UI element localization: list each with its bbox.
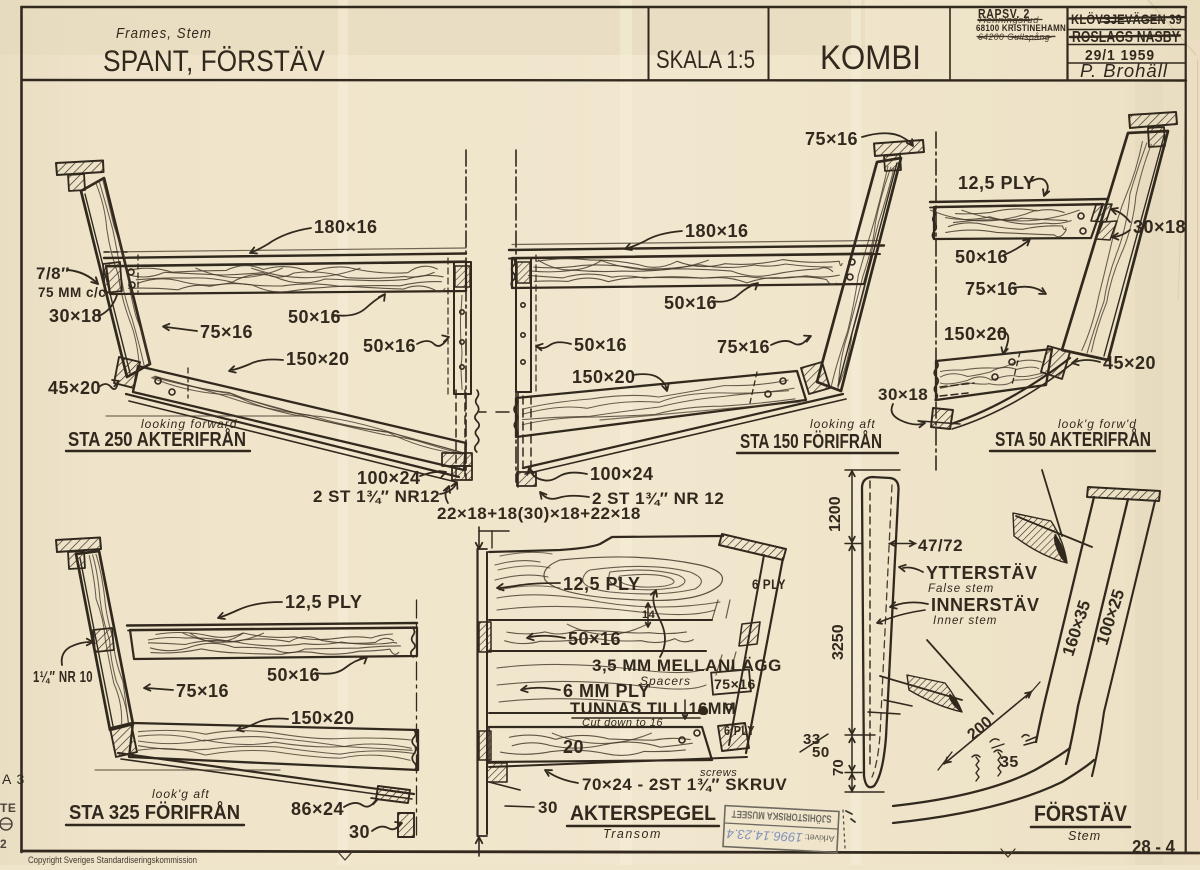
- svg-text:150×20: 150×20: [944, 324, 1008, 344]
- svg-text:75×16: 75×16: [176, 681, 229, 701]
- svg-text:75×16: 75×16: [805, 129, 858, 149]
- svg-text:30×18: 30×18: [49, 306, 102, 326]
- svg-text:TE: TE: [0, 801, 16, 815]
- svg-text:180×16: 180×16: [685, 221, 749, 241]
- svg-text:2 ST 1¾″ NR12: 2 ST 1¾″ NR12: [313, 487, 440, 506]
- svg-text:150×20: 150×20: [291, 708, 355, 728]
- svg-text:75×16: 75×16: [714, 676, 756, 692]
- svg-text:Transom: Transom: [603, 827, 662, 841]
- svg-text:20: 20: [563, 737, 584, 757]
- svg-text:50: 50: [812, 744, 830, 761]
- svg-text:False stem: False stem: [928, 583, 994, 595]
- svg-text:150×20: 150×20: [286, 349, 350, 369]
- svg-text:86×24: 86×24: [291, 799, 344, 819]
- svg-text:1¼″ NR 10: 1¼″ NR 10: [33, 669, 93, 686]
- svg-text:28 - 4: 28 - 4: [1132, 837, 1175, 857]
- svg-text:YTTERSTÄV: YTTERSTÄV: [926, 563, 1038, 583]
- svg-text:180×16: 180×16: [314, 217, 378, 237]
- svg-text:50×16: 50×16: [955, 247, 1008, 267]
- svg-text:30×18: 30×18: [1133, 217, 1186, 237]
- svg-text:30×18: 30×18: [878, 385, 928, 404]
- svg-text:6 MM PLY: 6 MM PLY: [563, 681, 650, 701]
- svg-text:70×24 - 2ST 1¾″ SKRUV: 70×24 - 2ST 1¾″ SKRUV: [582, 775, 787, 794]
- svg-text:50×16: 50×16: [664, 293, 717, 313]
- svg-text:30: 30: [349, 822, 370, 842]
- svg-text:150×20: 150×20: [572, 367, 636, 387]
- svg-text:looking aft: looking aft: [810, 417, 876, 431]
- svg-text:3250: 3250: [830, 624, 847, 660]
- svg-text:50×16: 50×16: [574, 335, 627, 355]
- svg-text:12,5 PLY: 12,5 PLY: [563, 574, 640, 594]
- svg-text:50×16: 50×16: [568, 629, 621, 649]
- svg-text:INNERSTÄV: INNERSTÄV: [931, 595, 1040, 615]
- svg-text:12,5 PLY: 12,5 PLY: [958, 173, 1035, 193]
- svg-text:A 3: A 3: [2, 771, 25, 787]
- svg-text:AKTERSPEGEL: AKTERSPEGEL: [570, 802, 716, 825]
- svg-text:75×16: 75×16: [965, 279, 1018, 299]
- svg-text:45×20: 45×20: [1103, 353, 1156, 373]
- svg-text:14: 14: [642, 609, 656, 621]
- svg-text:SPANT, FÖRSTÄV: SPANT, FÖRSTÄV: [103, 45, 325, 78]
- svg-text:22×18+18(30)×18+22×18: 22×18+18(30)×18+22×18: [437, 504, 641, 523]
- svg-text:screws: screws: [700, 767, 737, 779]
- svg-text:TUNNAS TILL 16MM: TUNNAS TILL 16MM: [570, 700, 736, 718]
- svg-text:FÖRSTÄV: FÖRSTÄV: [1034, 801, 1127, 826]
- svg-text:50×16: 50×16: [267, 665, 320, 685]
- svg-text:100×24: 100×24: [590, 464, 654, 484]
- svg-text:50×16: 50×16: [363, 336, 416, 356]
- svg-text:STA 150 FÖRIFRÅN: STA 150 FÖRIFRÅN: [740, 429, 882, 453]
- svg-text:SKALA 1:5: SKALA 1:5: [656, 46, 755, 74]
- svg-text:70: 70: [830, 759, 847, 776]
- svg-text:47/72: 47/72: [918, 536, 963, 555]
- svg-text:look'g aft: look'g aft: [152, 787, 210, 801]
- svg-text:45×20: 45×20: [48, 378, 101, 398]
- svg-text:Copyright Sveriges Standardise: Copyright Sveriges Standardiseringskommi…: [28, 855, 197, 865]
- svg-text:35: 35: [1000, 754, 1019, 771]
- svg-text:2: 2: [0, 837, 7, 851]
- svg-text:50×16: 50×16: [288, 307, 341, 327]
- svg-text:STA 50 AKTERIFRÅN: STA 50 AKTERIFRÅN: [995, 427, 1151, 451]
- svg-text:100×24: 100×24: [357, 468, 421, 488]
- svg-text:30: 30: [538, 798, 558, 817]
- svg-text:P. Brohäll: P. Brohäll: [1080, 61, 1168, 81]
- svg-text:STA 250 AKTERIFRÅN: STA 250 AKTERIFRÅN: [68, 427, 246, 451]
- svg-text:75×16: 75×16: [200, 322, 253, 342]
- svg-text:6 PLY: 6 PLY: [752, 577, 786, 592]
- svg-text:Frames, Stem: Frames, Stem: [116, 25, 212, 42]
- svg-text:Stem: Stem: [1068, 829, 1101, 843]
- svg-text:KOMBI: KOMBI: [820, 39, 921, 77]
- svg-text:12,5 PLY: 12,5 PLY: [285, 592, 362, 612]
- svg-text:75 MM c/c: 75 MM c/c: [38, 285, 106, 300]
- svg-text:75×16: 75×16: [717, 337, 770, 357]
- svg-text:1200: 1200: [827, 496, 844, 532]
- svg-text:Inner stem: Inner stem: [933, 615, 997, 627]
- svg-text:3,5 MM MELLANLÄGG: 3,5 MM MELLANLÄGG: [592, 656, 782, 675]
- svg-text:7/8″: 7/8″: [36, 264, 70, 283]
- svg-text:STA 325 FÖRIFRÅN: STA 325 FÖRIFRÅN: [69, 800, 240, 824]
- svg-text:Arkivet:: Arkivet:: [804, 832, 834, 844]
